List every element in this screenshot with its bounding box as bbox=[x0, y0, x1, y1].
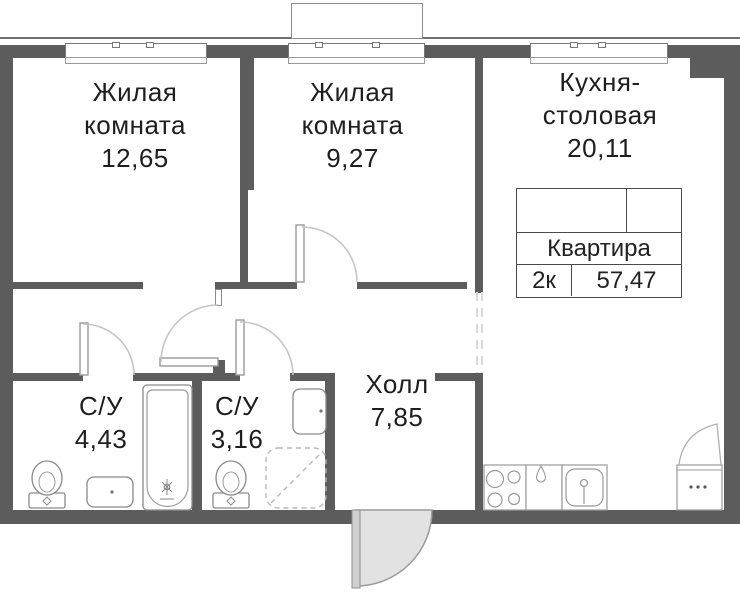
bathtub-faucet-cross bbox=[160, 479, 174, 499]
burner bbox=[487, 471, 504, 488]
shower-tray-diagonal bbox=[271, 453, 321, 503]
window-vent-tick bbox=[112, 42, 120, 48]
kitchen-cabinet bbox=[526, 465, 562, 510]
apartment-total-area: 57,47 bbox=[572, 265, 681, 296]
room-name-line: столовая bbox=[490, 99, 710, 132]
wall bbox=[290, 373, 335, 381]
floor-plan: Жилая комната 12,65 Жилая комната 9,27 К… bbox=[0, 0, 740, 600]
wall bbox=[207, 45, 288, 58]
door-leaf bbox=[236, 320, 244, 375]
wall bbox=[475, 381, 483, 510]
room-area: 12,65 bbox=[30, 142, 240, 175]
room-name-line: Жилая bbox=[30, 76, 240, 109]
info-table-values-row: 2к 57,47 bbox=[517, 265, 681, 296]
room-name-line: С/У bbox=[177, 390, 297, 423]
wall bbox=[428, 510, 740, 524]
wall bbox=[13, 282, 143, 289]
window-vent-tick bbox=[315, 42, 323, 48]
toilet-bowl bbox=[32, 461, 62, 495]
window-vent-tick bbox=[598, 42, 606, 48]
bathtub-faucet bbox=[164, 484, 170, 490]
burner bbox=[488, 493, 502, 507]
room-label-bathroom-1: С/У 4,43 bbox=[41, 390, 161, 456]
wall bbox=[425, 45, 530, 58]
wall bbox=[325, 381, 335, 510]
room-area: 7,85 bbox=[337, 401, 457, 434]
info-table-empty-cell bbox=[627, 189, 681, 232]
door-hinge-block bbox=[213, 360, 225, 373]
apartment-title: Квартира bbox=[547, 235, 651, 263]
window-vent-tick bbox=[570, 42, 578, 48]
room-label-hall: Холл 7,85 bbox=[337, 368, 457, 434]
wall bbox=[724, 45, 740, 524]
door-leaf bbox=[160, 358, 218, 366]
door-arc bbox=[83, 324, 134, 375]
room-label-living-1: Жилая комната 12,65 bbox=[30, 76, 240, 175]
room-area: 20,11 bbox=[490, 132, 710, 165]
door-arc bbox=[161, 305, 218, 362]
washing-machine-dot bbox=[696, 485, 699, 488]
toilet-button bbox=[43, 497, 51, 505]
toilet-tank bbox=[213, 493, 249, 508]
partition-stub bbox=[215, 289, 222, 306]
wall bbox=[13, 373, 83, 381]
door-arc bbox=[302, 227, 357, 282]
room-name-line: комната bbox=[245, 109, 460, 142]
room-label-kitchen: Кухня- столовая 20,11 bbox=[490, 66, 710, 165]
info-table-header-row bbox=[517, 189, 681, 233]
sink-drain bbox=[319, 409, 322, 412]
appliance-swing-arc bbox=[679, 424, 721, 465]
room-name-line: Кухня- bbox=[490, 66, 710, 99]
apartment-type: 2к bbox=[517, 265, 572, 296]
wall bbox=[133, 373, 240, 381]
sink bbox=[293, 389, 326, 434]
room-area: 3,16 bbox=[177, 423, 297, 456]
room-name-line: комната bbox=[30, 109, 240, 142]
window-sill bbox=[288, 57, 425, 64]
entrance-door bbox=[356, 510, 432, 586]
room-label-living-2: Жилая комната 9,27 bbox=[245, 76, 460, 175]
door-leaf bbox=[296, 225, 304, 282]
washing-machine bbox=[677, 465, 722, 510]
door-arc bbox=[240, 322, 293, 375]
faucet-drop-icon bbox=[537, 466, 546, 482]
sink-drain bbox=[110, 490, 113, 493]
kitchen-sink-counter bbox=[562, 465, 607, 510]
room-name-line: С/У bbox=[41, 390, 161, 423]
room-name-line: Холл bbox=[337, 368, 457, 401]
wall bbox=[357, 282, 467, 289]
burner bbox=[509, 494, 520, 505]
facade-line-right bbox=[423, 37, 740, 39]
room-area: 4,43 bbox=[41, 423, 161, 456]
toilet-bowl-inner bbox=[39, 472, 55, 492]
entrance-door-leaf bbox=[352, 510, 360, 588]
facade-line-left bbox=[0, 37, 291, 39]
wall bbox=[240, 190, 248, 283]
kitchen-sink-basin bbox=[566, 469, 603, 506]
wall bbox=[0, 510, 353, 524]
toilet-tank bbox=[29, 493, 65, 508]
balcony-outline bbox=[291, 3, 423, 39]
wall bbox=[475, 58, 483, 293]
washing-machine-dot bbox=[689, 485, 692, 488]
washing-machine-dot bbox=[703, 485, 706, 488]
wall bbox=[215, 282, 297, 289]
room-area: 9,27 bbox=[245, 142, 460, 175]
cooktop bbox=[484, 465, 526, 510]
wall bbox=[0, 45, 13, 524]
info-table-empty-cell bbox=[517, 189, 627, 232]
window-vent-tick bbox=[146, 42, 154, 48]
toilet-button bbox=[227, 497, 235, 505]
toilet-bowl bbox=[216, 461, 246, 495]
info-table-title-row: Квартира bbox=[517, 233, 681, 265]
apartment-info-table: Квартира 2к 57,47 bbox=[516, 188, 682, 298]
window-sill bbox=[65, 57, 207, 64]
room-name-line: Жилая bbox=[245, 76, 460, 109]
kitchen-sink-faucet bbox=[581, 480, 588, 487]
door-leaf bbox=[80, 323, 88, 375]
burner bbox=[508, 471, 520, 483]
room-label-bathroom-2: С/У 3,16 bbox=[177, 390, 297, 456]
shower-tray bbox=[266, 448, 326, 508]
window-sill bbox=[530, 57, 668, 64]
window-vent-tick bbox=[372, 42, 380, 48]
toilet-bowl-inner bbox=[223, 472, 239, 492]
sink bbox=[87, 477, 133, 507]
